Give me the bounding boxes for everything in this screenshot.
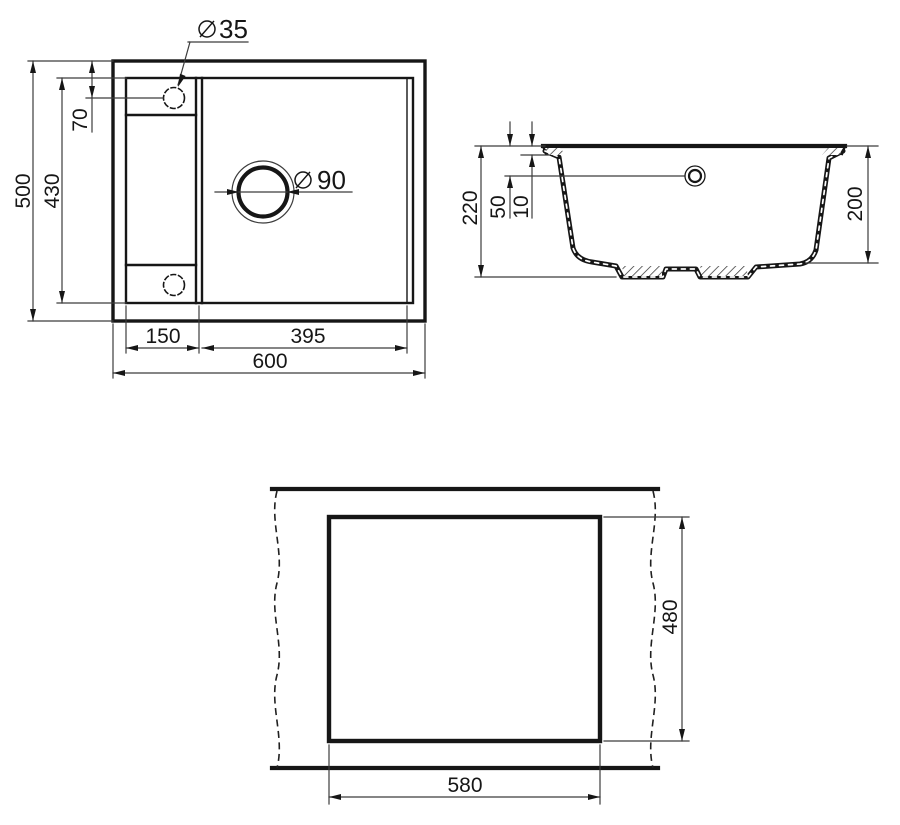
dim-rim-thickness: 10 (510, 122, 549, 219)
plan-view: 500 430 70 150 (12, 14, 425, 378)
tap-hole-top (164, 88, 185, 109)
sink-outer-edge (113, 61, 425, 321)
drawing-canvas: 500 430 70 150 (0, 0, 900, 825)
dim-label-480: 480 (659, 599, 682, 634)
dim-label-430: 430 (41, 173, 64, 208)
dim-drainer-width: 150 (126, 306, 199, 353)
dim-cutout-depth: 480 (604, 517, 689, 741)
dim-bowl-width: 395 (202, 306, 407, 353)
dim-cutout-width: 580 (329, 745, 600, 804)
dim-label-580: 580 (447, 774, 482, 797)
cutout-rectangle (329, 517, 600, 741)
dim-label-50: 50 (487, 195, 510, 218)
diameter-icon (295, 172, 311, 188)
dim-overall-height: 220 (459, 146, 616, 277)
section-view: 220 50 10 200 (459, 122, 878, 277)
dim-label-10: 10 (510, 195, 533, 218)
overflow-hole-inner (689, 170, 701, 182)
dim-label-dia-90: 90 (317, 165, 346, 195)
break-line-left (275, 491, 280, 768)
dim-label-220: 220 (459, 190, 482, 225)
sink-technical-drawing: 500 430 70 150 (0, 0, 900, 825)
dim-label-600: 600 (252, 350, 287, 373)
right-foot-pad-hatch (700, 266, 748, 276)
dim-tap-offset: 70 (69, 61, 163, 132)
dim-label-395: 395 (290, 325, 325, 348)
diameter-icon (199, 21, 215, 37)
sink-cross-section (505, 146, 845, 277)
left-foot-pad-hatch (622, 266, 662, 276)
dim-label-200: 200 (844, 186, 867, 221)
dim-label-150: 150 (145, 325, 180, 348)
cutout-view: 480 580 (272, 489, 689, 804)
dim-label-70: 70 (69, 108, 92, 131)
dim-tap-diameter: 35 (178, 14, 248, 87)
break-line-right (651, 491, 656, 768)
dim-label-500: 500 (12, 173, 35, 208)
sink-inner-rim (126, 78, 413, 303)
dim-label-dia-35: 35 (219, 14, 248, 44)
tap-hole-bottom (164, 275, 185, 296)
